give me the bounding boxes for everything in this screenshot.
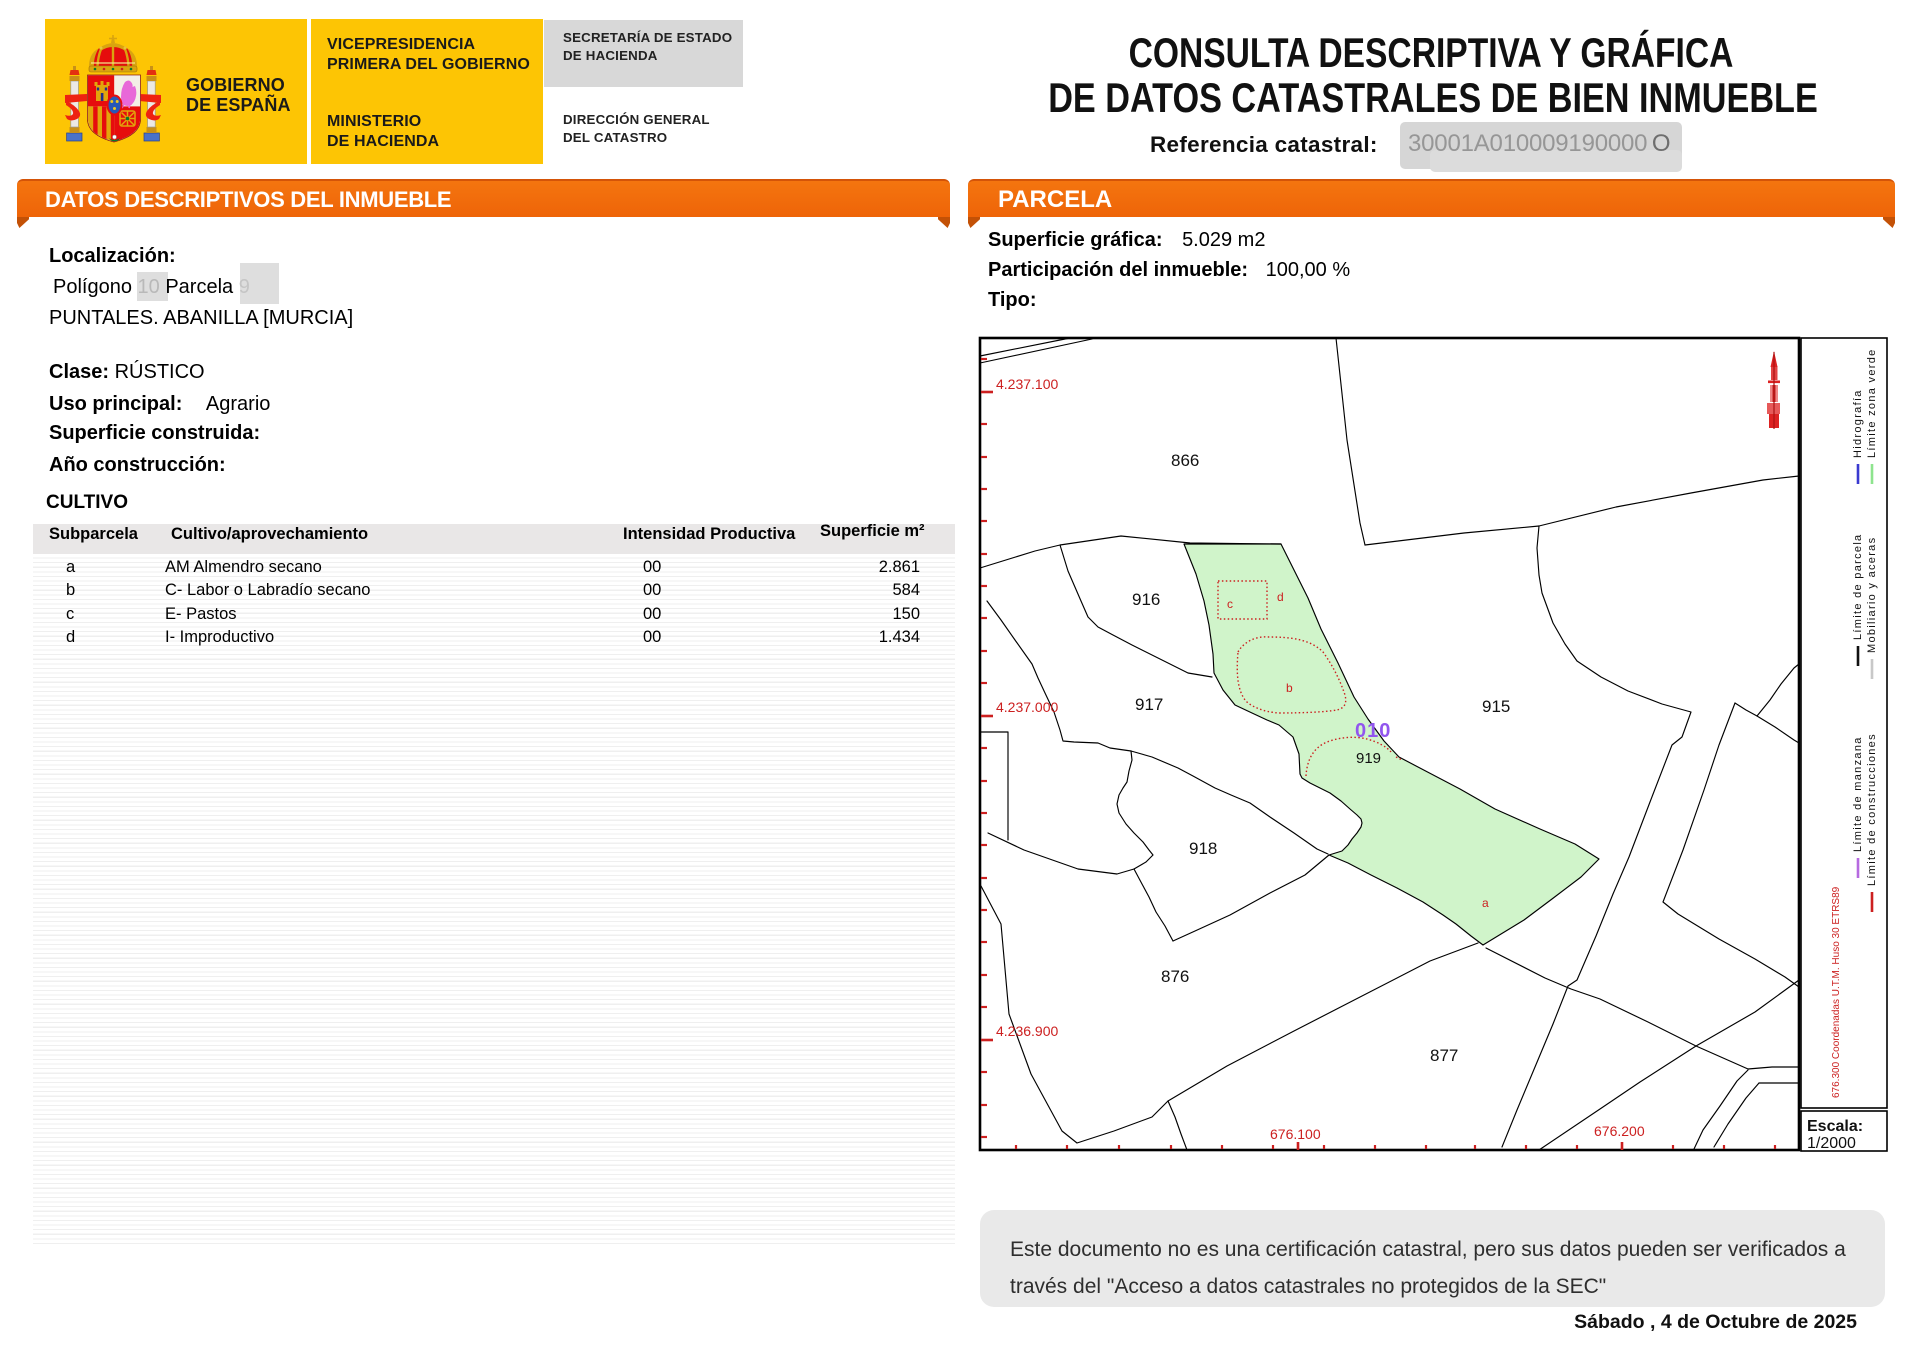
svg-text:d: d [1277, 590, 1284, 604]
svg-text:918: 918 [1189, 839, 1217, 858]
svg-text:876: 876 [1161, 967, 1189, 986]
svg-text:4.237.000: 4.237.000 [996, 699, 1058, 715]
svg-text:4.236.900: 4.236.900 [996, 1023, 1058, 1039]
svg-text:866: 866 [1171, 451, 1199, 470]
svg-text:a: a [1482, 896, 1489, 910]
svg-text:Límite de parcela: Límite de parcela [1852, 534, 1864, 640]
svg-text:917: 917 [1135, 695, 1163, 714]
svg-text:676.300 Coordenadas U.T.M. Hus: 676.300 Coordenadas U.T.M. Huso 30 ETRS8… [1831, 886, 1842, 1098]
svg-text:676.100: 676.100 [1270, 1126, 1321, 1142]
svg-text:Escala:: Escala: [1807, 1118, 1863, 1135]
svg-text:Límite zona verde: Límite zona verde [1866, 348, 1878, 458]
svg-text:Mobiliario y aceras: Mobiliario y aceras [1866, 537, 1878, 653]
svg-text:Límite de construcciones: Límite de construcciones [1866, 733, 1878, 886]
svg-text:4.237.100: 4.237.100 [996, 376, 1058, 392]
svg-text:b: b [1286, 681, 1293, 695]
svg-text:676.200: 676.200 [1594, 1123, 1645, 1139]
svg-text:010: 010 [1355, 720, 1391, 742]
svg-text:Límite de manzana: Límite de manzana [1852, 736, 1864, 852]
svg-text:c: c [1227, 597, 1233, 611]
svg-text:915: 915 [1482, 697, 1510, 716]
svg-text:877: 877 [1430, 1046, 1458, 1065]
svg-text:916: 916 [1132, 590, 1160, 609]
svg-text:Hidrografía: Hidrografía [1852, 389, 1864, 458]
svg-text:1/2000: 1/2000 [1807, 1135, 1856, 1152]
svg-text:919: 919 [1356, 750, 1381, 767]
